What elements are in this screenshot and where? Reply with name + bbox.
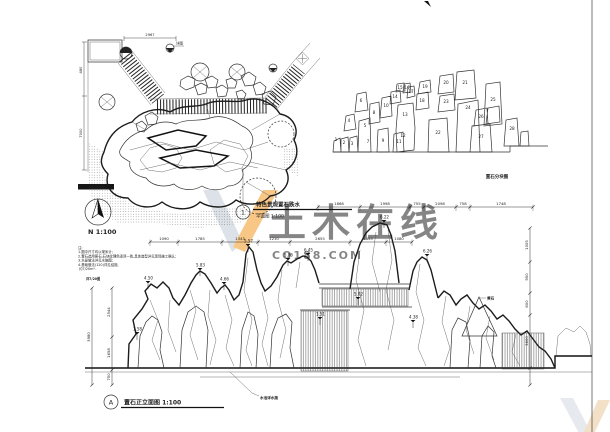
dim-label: 3980 [86,332,91,342]
elevation-top-note: 详7/20图 [86,276,100,281]
level-flag-icon [411,320,416,322]
level-flag-icon [425,254,430,256]
level-flag-icon [146,281,151,283]
block-number: 19 [422,84,428,89]
block-number: 6 [360,98,363,103]
block-number: 25 [490,97,496,102]
cad-sheet: 土木在线 CO188.COM 2967 480 7000 [0,0,610,432]
block-rocks [333,70,529,152]
plan-callout-number: 1 [241,209,245,217]
level-value: 6.26 [423,248,432,253]
block-number: 5 [364,123,367,128]
level-value: 4.38 [409,314,418,319]
block-number: 27 [478,134,484,139]
dim-label: 2544 [106,307,111,317]
level-value: 5.83 [196,262,205,267]
level-flag-icon [198,268,203,270]
plan-ref-label: 详见1/XX图 [87,184,104,189]
block-number: 1 [335,137,338,142]
dim-label: 600 [524,300,529,308]
plan-dim-top: 2967 [145,33,154,37]
block-diagram-label: 置石分块图 [486,173,509,180]
dim-label: 1343 [235,236,245,241]
block-number: 9 [382,138,385,143]
top-edge-mark [424,1,431,7]
plan-trees [99,47,309,214]
block-number: 3 [351,141,354,146]
detail-marker-label: 详图 [176,41,183,46]
block-numbers: 1234567891011121314151617181920212223242… [335,80,515,146]
plan-planter [88,40,122,62]
block-number: 17 [408,89,414,94]
plan-ref-strip: 详见1/XX图 [78,184,114,190]
dim-label: 2098 [435,201,445,206]
level-value: 1.51 [316,311,325,316]
block-number: 11 [396,139,402,144]
level-value: 6.45 [304,247,313,252]
elevation-callout: A 置石正立面图 1:100 [104,395,224,409]
dim-label: 755 [413,201,421,206]
watermark-corner-accent [583,400,610,432]
level-value: 5.57 [244,238,253,243]
block-number: 21 [462,80,468,85]
block-number: 24 [465,105,471,110]
block-number: 7 [367,139,370,144]
plan-top-dimension: 2967 [124,33,176,41]
notes-block: 注:1.图中尺寸均以毫米计;2.置石选用黄石,石块纹理色泽须一致,具体造型详见现… [78,245,176,271]
dim-label: 1868 [334,201,344,206]
dim-label: 1090 [159,236,169,241]
block-number: 8 [373,110,376,115]
block-number: 4 [348,118,351,123]
block-number: 10 [383,103,389,108]
level-flag-icon [222,282,227,284]
block-number: 15 [397,85,403,90]
block-number: 26 [478,114,484,119]
block-number: 28 [509,126,515,131]
dim-label: 1658 [106,348,111,358]
dim-label: 1748 [496,201,506,206]
north-scale-label: N 1:100 [88,228,117,236]
dim-label: 1005 [524,240,529,250]
elevation-callout-letter: A [109,399,114,407]
plan-title: 特色景观置石跌水 [256,201,301,209]
block-number: 23 [443,99,449,104]
stone-label: 黄石 [486,296,495,301]
block-number: 22 [435,130,441,135]
plan-left-dimension: 480 7000 [79,42,87,170]
level-value: 6.22 [380,214,389,219]
dim-label: 1455 [363,236,373,241]
plan-hatch-bands [118,43,320,114]
dim-label: 758 [459,201,467,206]
elevation-title: 置石正立面图 1:100 [124,399,181,407]
level-value: 4.50 [144,275,153,280]
block-diagram: 1234567891011121314151617181920212223242… [333,70,548,180]
dim-label: 750 [106,373,111,381]
dim-label: 1998 [380,201,390,206]
block-number: 2 [343,140,346,145]
level-value: 5.86 [284,252,293,257]
pool-label: 水池详水施 [259,395,278,400]
block-number: 12 [400,133,406,138]
notes-text: 注:1.图中尺寸均以毫米计;2.置石选用黄石,石块纹理色泽须一致,具体造型详见现… [78,245,176,271]
dim-label: 1785 [195,236,205,241]
dim-label: 3600 [524,336,529,346]
dim-label: 1210 [269,236,279,241]
block-number: 13 [402,112,408,117]
level-value: 5.02 [354,291,363,296]
plan-dim-left-b: 7000 [79,128,83,138]
block-number: 14 [392,94,398,99]
plan-dim-left-a: 480 [79,66,83,74]
level-value: 1.58 [133,326,142,331]
dim-label: 1080 [394,236,404,241]
block-number: 20 [443,80,449,85]
detail-marker-icon: 详图 [166,41,277,73]
plan-scale: 平面图 1:100 [256,214,284,220]
level-value: 4.66 [220,276,229,281]
dim-label: 950 [524,273,529,281]
cad-drawing: 土木在线 CO188.COM 2967 480 7000 [0,0,610,432]
block-number: 18 [419,98,425,103]
dim-label: 2655 [315,236,325,241]
